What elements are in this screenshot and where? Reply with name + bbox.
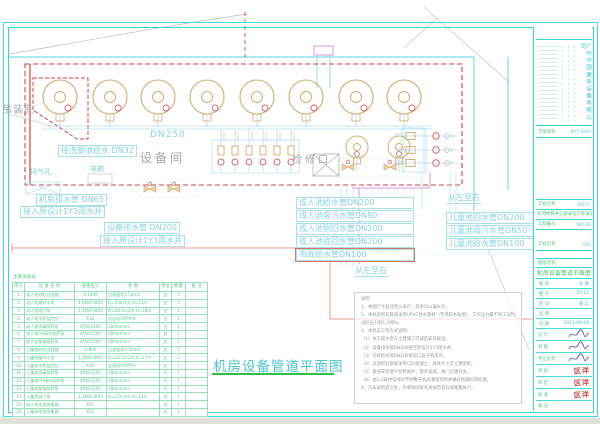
equipment-cell: 儿童池PH调节投药泵 [25,377,75,385]
equipment-cell: 9 [13,354,25,362]
equipment-cell: 台 [160,393,172,401]
equipment-cell: 儿童池吸污泵 [25,393,75,401]
info-value: 水 施 [579,281,589,287]
equipment-cell: 台 [160,315,172,323]
equipment-cell [186,385,208,393]
equipment-cell: 5 [13,323,25,331]
equipment-cell: 1 [172,323,186,331]
project-row: 工程名称 PA127 [536,200,592,210]
equipment-cell [186,362,208,370]
equipment-cell [186,315,208,323]
equipment-cell: 45W/220V [75,330,107,338]
equipment-cell: 1 [172,369,186,377]
equipment-cell [186,323,208,331]
equip-col-header: 设 备 名 称 [25,283,75,292]
drawing-title: 机房设备管道平面图 [213,355,344,375]
equipment-cell [186,338,208,346]
note-line: （6）由1.2级材电线均不明敷于机房潮湿场所并做好防腐防锈处理。 [355,377,521,385]
equipment-row: 5成人池消毒投药泵45W/220V280ml/min台1 [13,323,208,331]
equipment-cell [186,292,208,300]
signature-row: 专业负责 [536,353,592,365]
signature-row: 审 定区洋 [536,377,592,389]
equipment-cell: 1 [172,315,186,323]
info-row: 图 号ZY-12 [536,289,592,299]
equipment-cell: 儿童池消毒投药泵 [25,369,75,377]
equipment-row: 2成人池循环水泵4.6KW/380VQ=50m3/h,H=23m台5 [13,299,208,307]
equipment-cell: 台 [160,385,172,393]
equipment-cell: S-1400 [75,292,107,300]
adult-pool-pipe-label: 成人池底回水管DN200 [296,236,414,248]
signature-row: 审 核区洋 [536,365,592,377]
equipment-row: 16儿童池毛发收集器KT2台1 [13,408,208,416]
empty-box [536,138,592,200]
equipment-row: 14儿童池吸污泵2.2KW/380VQ=15m3/h,H=13m台1 [13,393,208,401]
note-line: （1）本工程水泵在土建施工完成后安装就位。 [355,336,521,344]
equipment-cell: 台 [160,299,172,307]
equipment-cell: 台 [160,408,172,416]
drawing-title-underline [212,373,334,375]
equipment-cell [186,346,208,354]
note-line: 说明 [355,293,521,304]
equipment-cell [107,401,160,409]
remark-label: 备 注 [538,403,548,409]
adult-pool-pipe-label: 市政给水管DN100 [296,249,414,261]
equipment-cell [186,299,208,307]
equipment-table: 序号设 备 名 称规格型号参 数单位数量备 注1成人池砂缸过滤器S-1400过滤… [12,282,208,417]
equipment-cell: 儿童池絮凝投药泵 [25,385,75,393]
equipment-cell: KT1 [75,401,107,409]
screenshot-canvas: 吊装孔 设备间 检修口 排气孔 电箱 接洗脚池给水 DN32 DN250 从左至… [0,0,600,424]
company-box: 广州中国康体设备有限公司 [536,40,592,127]
equipment-row: 8儿童池砂缸过滤器S-800过滤面积0.50m2台2 [13,346,208,354]
equipment-cell: 成人池PH调节投药泵 [25,330,75,338]
vent-hole-label: 排气孔 [30,168,51,176]
equipment-cell: Q=28.3m3/h,H=18m [107,307,160,315]
equipment-row: 4成人池水质监控仪K42全自动ORP/PH台1 [13,315,208,323]
hoist-hole-label: 吊装孔 [2,105,35,117]
equipment-cell: Q=15m3/h,H=13m [107,393,160,401]
direction-label: 从左至右 [447,193,481,204]
equipment-cell: 2.2KW/380V [75,393,107,401]
equipment-cell: 16 [13,408,25,416]
info-label: 比 例 [539,311,549,317]
equipment-cell: 台 [160,338,172,346]
drawing-sheet: 吊装孔 设备间 检修口 排气孔 电箱 接洗脚池给水 DN32 DN250 从左至… [0,0,600,418]
lead-row: 工程负责 02K [536,239,592,251]
equip-col-header: 规格型号 [75,283,107,292]
approval-stamp: 区洋 [574,365,591,376]
desk-background [0,418,600,424]
cert-row: 节能审批 407-1049 [536,126,592,138]
equipment-cell: 1 [172,408,186,416]
equipment-cell: 14 [13,393,25,401]
equipment-cell: 台 [160,323,172,331]
equipment-cell: K42 [75,362,107,370]
equipment-cell: 台 [160,292,172,300]
equipment-row: 13儿童池絮凝投药泵45W/220V280ml/min台1 [13,385,208,393]
equipment-cell: 儿童池砂缸过滤器 [25,346,75,354]
footwash-supply-label: 接洗脚池给水 DN32 [58,145,137,157]
equipment-cell [186,393,208,401]
equipment-cell: 1 [172,401,186,409]
equipment-cell: 45W/220V [75,338,107,346]
info-value: 施 工 [579,301,589,307]
equipment-cell: 成人池水质监控仪 [25,315,75,323]
approval-stamp: 区洋 [574,377,591,388]
equipment-cell: 15 [13,401,25,409]
equipment-cell: 3 [13,307,25,315]
equipment-cell: 280ml/min [107,323,160,331]
info-rows: 图 别水 施图 号ZY-12阶 段施 工比 例日 期2013-09-06 [536,279,592,329]
signature-label: 审 定 [538,380,548,386]
equipment-cell: 2 [13,299,25,307]
title-block-top-box [536,27,592,40]
remark-row: 备 注 [536,401,592,411]
equipment-cell: 6 [13,330,25,338]
equipment-cell: 台 [160,330,172,338]
equipment-cell: 1 [172,307,186,315]
signature-row: 批 准区洋 [536,389,592,401]
equipment-room-label: 设备间 [140,151,185,165]
equipment-cell: 2 [172,346,186,354]
equipment-row: 1成人池砂缸过滤器S-1400过滤面积1.54m2台5 [13,292,208,300]
spacer [536,230,592,239]
equipment-cell: 台 [160,362,172,370]
equipment-cell: 成人池砂缸过滤器 [25,292,75,300]
lead-value: 02K [582,242,590,247]
title-block: 广州中国康体设备有限公司 节能审批 407-1049 工程名称 PA127 天河… [533,27,592,411]
sheet-row: 图纸名称 [536,259,592,269]
equipment-cell: 过滤面积0.50m2 [107,346,160,354]
note-line: 试验压力取1.2MPa。 [355,320,521,328]
drain-pipe-label: 接入原设计1Y3雨水井 [20,206,105,218]
equipment-cell: 45W/220V [75,323,107,331]
equipment-cell: 儿童池循环水泵 [25,354,75,362]
lead-label: 工程负责 [538,241,556,247]
info-row: 阶 段施 工 [536,299,592,309]
info-label: 日 期 [539,321,549,327]
equipment-cell: 12 [13,377,25,385]
equipment-cell [186,369,208,377]
equipment-cell: S-800 [75,346,107,354]
direction-label: 从左至右 [354,266,388,277]
info-value: ZY-12 [577,291,589,296]
equipment-cell: 11 [13,369,25,377]
equipment-row: 12儿童池PH调节投药泵45W/220V280ml/min台1 [13,377,208,385]
equipment-row: 3成人池吸污泵2.2KW/380VQ=28.3m3/h,H=18m台1 [13,307,208,315]
equipment-row: 10儿童池水质监控仪K42全自动ORP/PH台1 [13,362,208,370]
equipment-cell [186,377,208,385]
equipment-cell: 280ml/min [107,369,160,377]
signature-label: 专业负责 [538,356,555,362]
equipment-cell: 1 [172,393,186,401]
equipment-cell: 280ml/min [107,338,160,346]
equipment-cell: 4.6KW/380V [75,299,107,307]
equipment-cell: 5 [172,299,186,307]
project-label: 工程名称 [538,201,556,207]
notes-box: 说明1、本图尺寸标注皆以米计，其余均以毫米计。2、本机房所有管道采用UPVC给水… [354,292,522,404]
equipment-cell [186,330,208,338]
equipment-cell: 台 [160,354,172,362]
credential-text-block [538,46,558,122]
note-line: （4）过滤砂缸基础采用C20混凝土，具体大小见土建图纸。 [355,361,521,369]
equipment-cell: 280ml/min [107,385,160,393]
equipment-cell: 台 [160,346,172,354]
equipment-cell: 成人池循环水泵 [25,299,75,307]
equip-col-header: 参 数 [107,283,160,292]
equipment-cell: Q=50m3/h,H=23m [107,299,160,307]
electrical-box-label: 电箱 [90,165,104,173]
equipment-cell: 过滤面积1.54m2 [107,292,160,300]
equipment-cell: 1 [172,377,186,385]
info-row: 图 别水 施 [536,279,592,289]
equipment-cell: 13 [13,385,25,393]
project-value: PA127 [577,202,590,207]
credential-text-column [562,46,563,122]
equip-col-header: 数量 [172,283,186,292]
equipment-cell: 儿童池水质监控仪 [25,362,75,370]
equip-col-header: 备 注 [186,283,208,292]
drain-pipe-label: 机房排水管 DN65 [36,194,107,206]
cert-label: 节能审批 [538,129,556,135]
sheet-label: 图纸名称 [538,260,556,266]
equipment-cell: 280ml/min [107,330,160,338]
equipment-cell: 7 [13,338,25,346]
equipment-row: 6成人池PH调节投药泵45W/220V280ml/min台1 [13,330,208,338]
credential-text-column [568,46,569,122]
info-row: 比 例 [536,309,592,319]
note-line: 4、凡未说明者之处，均参照国家有关规范及标准图集执行。 [355,385,521,393]
equipment-cell: 成人池消毒投药泵 [25,323,75,331]
equipment-cell: 成人池毛发收集器 [25,401,75,409]
sheet-name: 机房设备管道平面图 [536,268,592,279]
empty-box [536,251,592,259]
adult-pool-pipe-label: 成人池侧回水管DN200 [296,223,414,235]
equipment-cell: 1 [13,292,25,300]
equipment-cell: KT2 [75,408,107,416]
approval-stamp: 区洋 [574,389,591,400]
equipment-cell: K42 [75,315,107,323]
equipment-cell [186,354,208,362]
equipment-cell: 45W/220V [75,377,107,385]
equipment-cell: 45W/220V [75,385,107,393]
equipment-cell [186,307,208,315]
equipment-table-caption: 主要设备表 [13,274,36,280]
equipment-cell: 8 [13,346,25,354]
equipment-cell [186,408,208,416]
equipment-row: 15成人池毛发收集器KT1台1 [13,401,208,409]
equipment-cell: 2.2KW/380V [75,354,107,362]
note-line: 1、本图尺寸标注皆以米计，其余均以毫米计。 [355,304,521,312]
equipment-cell: 1 [172,385,186,393]
info-label: 图 号 [539,291,549,297]
equipment-cell: 全自动ORP/PH [107,362,160,370]
signature-label: 审 核 [538,368,548,374]
signature-label: 设 计 [538,332,548,338]
equipment-cell: Q=28.5m3/h,H=17m [107,354,160,362]
signature-label: 批 准 [538,392,548,398]
drain-pipe-label: 设备排水管 DN200 [104,222,180,234]
adult-pool-pipe-label: 成人池给水管DN200 [296,197,414,209]
signature-label: 制 图 [538,344,548,350]
note-line: （5）管道安装便于检修维护，整齐美观，阀门方便开关。 [355,369,521,377]
drain-pipe-label: 接入原设计1Y3雨水井 [100,235,185,247]
equipment-cell: 台 [160,307,172,315]
cert-value: 407-1049 [571,129,590,134]
equipment-cell: 280ml/min [107,377,160,385]
equipment-cell [107,408,160,416]
project-name: 天河体育中心游泳馆户外泳池工程 [536,210,592,220]
note-line: （2）设备排水管DN200接至原设计1Y3雨水井。 [355,345,521,353]
equipment-cell [186,401,208,409]
note-line: （3）市政给水管DN100接驳口设于机房内。 [355,353,521,361]
adult-pool-pipe-label: 成人池吸污水管DN80 [296,210,414,222]
equipment-cell: 1 [172,330,186,338]
note-line: 2、本机房所有管道采用UPVC给水管材（专用胶水粘接），工作压力最不利工况时， [355,312,521,320]
equip-col-header: 序号 [13,283,25,292]
equipment-cell: 儿童池毛发收集器 [25,408,75,416]
equipment-cell: 2 [172,354,186,362]
equipment-cell: 2.2KW/380V [75,307,107,315]
equipment-cell: 成人池吸污泵 [25,307,75,315]
equipment-cell: 成人池絮凝投药泵 [25,338,75,346]
access-hatch-label: 检修口 [292,155,331,167]
project-no-row: 工程编号 NST30 [536,220,592,231]
equipment-cell: 台 [160,401,172,409]
equipment-row: 7成人池絮凝投药泵45W/220V280ml/min台1 [13,338,208,346]
equip-col-header: 单位 [160,283,172,292]
credential-text-column [574,46,575,122]
project-no-value: NST30 [577,222,590,227]
equipment-cell: 10 [13,362,25,370]
project-no-label: 工程编号 [538,221,556,227]
info-label: 图 别 [539,281,549,287]
equipment-cell: 5 [172,292,186,300]
equipment-cell: 台 [160,377,172,385]
signature-rows: 设 计制 图专业负责审 核区洋审 定区洋批 准区洋 [536,329,592,401]
main-pipe-size-label: DN250 [150,130,186,141]
equipment-row: 9儿童池循环水泵2.2KW/380VQ=28.5m3/h,H=17m台2 [13,354,208,362]
company-name: 广州中国康体设备有限公司 [579,43,590,126]
equipment-cell: 1 [172,338,186,346]
equipment-cell: 4 [13,315,25,323]
info-label: 阶 段 [539,301,549,307]
equipment-cell: 台 [160,369,172,377]
note-line: 3、本机房工作方式说明： [355,328,521,336]
equipment-cell: 45W/220V [75,369,107,377]
equipment-cell: 全自动ORP/PH [107,315,160,323]
equipment-row: 11儿童池消毒投药泵45W/220V280ml/min台1 [13,369,208,377]
equipment-cell: 1 [172,362,186,370]
